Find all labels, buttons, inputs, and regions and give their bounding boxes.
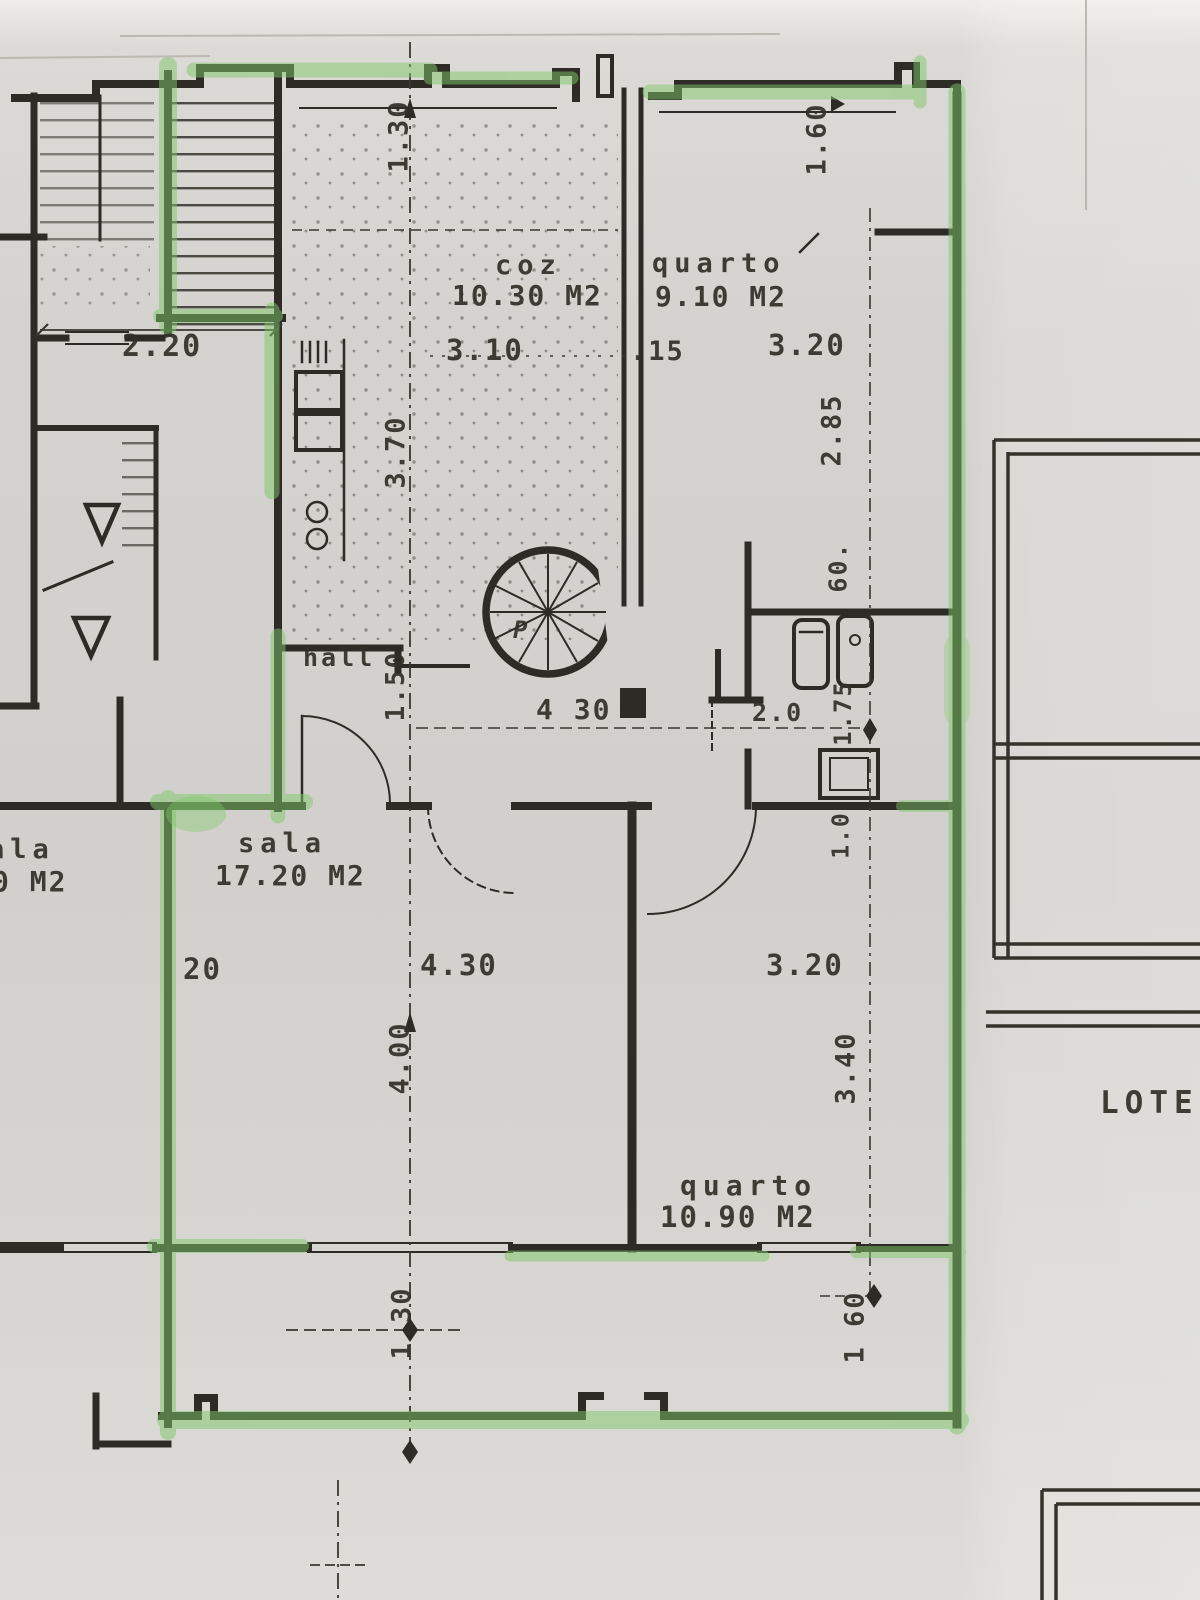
dim-label-1-30-bottom: 1.30 xyxy=(389,1286,416,1359)
dim-label-3-10: 3.10 xyxy=(446,336,524,365)
room-label-left-clipped-name: ala xyxy=(0,836,55,863)
room-label-hall: hall xyxy=(303,645,375,670)
dim-label-3-20-sala: 3.20 xyxy=(766,951,844,980)
dim-label-1-75: 1.75 xyxy=(831,680,855,746)
room-label-sala-name: sala xyxy=(238,830,327,857)
dim-label-3-70: 3.70 xyxy=(383,415,410,488)
highlighter-smudge xyxy=(166,796,226,832)
dim-label-2-85: 2.85 xyxy=(819,393,846,466)
dim-label-1-30-top: 1.30 xyxy=(386,99,413,172)
lote-label: LOTE xyxy=(1100,1088,1199,1119)
dim-label-4-30-sala: 4.30 xyxy=(420,951,498,980)
dim-label-60: 60. xyxy=(826,541,851,592)
spiral-stair-p-label: P xyxy=(513,618,529,642)
lote-building xyxy=(986,440,1200,1600)
floorplan-photo: coz 10.30 M2 quarto 9.10 M2 hall sala 17… xyxy=(0,0,1200,1600)
dim-label-3-20-top: 3.20 xyxy=(768,331,846,360)
room-label-quarto-top-area: 9.10 M2 xyxy=(655,283,787,311)
room-label-coz-area: 10.30 M2 xyxy=(452,282,603,310)
floorplan-drawing xyxy=(0,0,1200,1600)
dim-label-1-60-top: 1.60 xyxy=(804,102,831,175)
dim-label-1-50: 1.50 xyxy=(383,651,409,722)
room-label-sala-area: 17.20 M2 xyxy=(215,862,366,890)
dim-label-2-20: 2.20 xyxy=(122,332,202,362)
dim-label-3-40: 3.40 xyxy=(833,1031,860,1104)
dim-label-1-0: 1.0 xyxy=(831,811,854,859)
room-label-quarto-bottom-area: 10.90 M2 xyxy=(660,1203,816,1232)
dim-label-15: .15 xyxy=(630,338,685,365)
stair-treads-left xyxy=(40,96,154,242)
dim-label-4-30-mid: 4 30 xyxy=(536,696,611,724)
room-label-left-clipped-area: 0 M2 xyxy=(0,868,67,896)
room-label-quarto-top-name: quarto xyxy=(652,250,786,277)
room-label-coz-name: coz xyxy=(495,252,562,279)
stair-treads-main xyxy=(172,96,274,326)
dim-label-4-00: 4.00 xyxy=(387,1021,414,1094)
dim-label-20: 20 xyxy=(183,955,222,984)
dim-label-2-0: 2.0 xyxy=(752,700,803,725)
dim-label-1-60-bottom: 1 60 xyxy=(842,1290,869,1363)
wall-end-block xyxy=(620,688,646,718)
room-label-quarto-bottom-name: quarto xyxy=(680,1172,817,1200)
tile-dots-left-bath xyxy=(38,246,150,312)
stair-treads-inner xyxy=(122,440,156,552)
